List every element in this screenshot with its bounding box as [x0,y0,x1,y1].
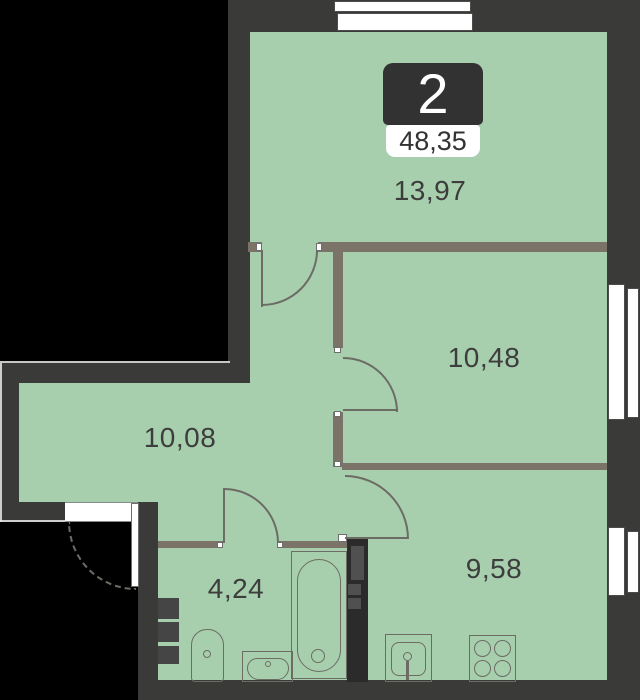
room-area-label-bedroom: 10,48 [448,344,521,372]
wall-hall-bedroom-lower [333,412,343,467]
stove-burner [494,640,511,657]
wall-living-bottom [318,242,607,252]
shaft-block [348,598,361,609]
wall-bathroom-top-left [158,541,223,548]
riser-block [158,622,179,642]
apartment-badge: 2 48,35 [383,63,483,157]
wall-hall-bedroom-upper [333,250,343,348]
window-bedroom-outer-sash [627,288,639,418]
jamb-cap [334,411,341,417]
shaft-block [348,584,361,595]
kitchen-sink-tap-handle [406,661,409,680]
entrance-threshold [65,502,138,522]
room-area-label-hallway: 10,08 [144,424,217,452]
wall-bathroom-top-right [277,541,347,548]
riser-block [158,646,179,664]
riser-block [158,598,179,619]
wall-bottom [138,680,640,700]
shaft-block [351,546,364,580]
bathtub-drain [311,649,325,663]
wall-hallway-left [0,363,19,522]
wall-bedroom-kitchen [342,463,607,470]
badge-room-count: 2 [383,63,483,125]
window-bedroom-inner-sash [608,284,625,420]
entrance-door-swing-arc [68,522,136,590]
window-kitchen-inner-sash [608,527,625,596]
wall-left-upper [228,0,250,383]
floor-plan: 2 48,35 13,97 10,48 10,08 9,58 4,24 [0,0,640,700]
jamb-cap [334,347,341,353]
jamb-cap [334,461,341,467]
stove-burner [494,660,511,677]
stove-burner [474,640,491,657]
kitchen-sink-tap [403,652,412,661]
room-area-label-living: 13,97 [394,177,467,205]
window-living-outer-sash [334,1,471,12]
room-area-label-bathroom: 4,24 [208,575,265,603]
window-living-inner-sash [337,13,473,31]
wall-entry-side [138,502,158,684]
room-area-label-kitchen: 9,58 [466,555,523,583]
outer-edge-bottom [0,520,66,522]
outer-edge-left [0,363,2,522]
stove-burner [474,660,491,677]
window-kitchen-outer-sash [627,531,639,593]
wall-hallway-bottom [0,502,65,522]
bathroom-sink-tap [265,661,271,667]
badge-total-area: 48,35 [386,125,480,157]
toilet-flush-button [203,650,211,658]
wall-hallway-top [0,363,250,383]
outer-edge-top [0,361,230,363]
